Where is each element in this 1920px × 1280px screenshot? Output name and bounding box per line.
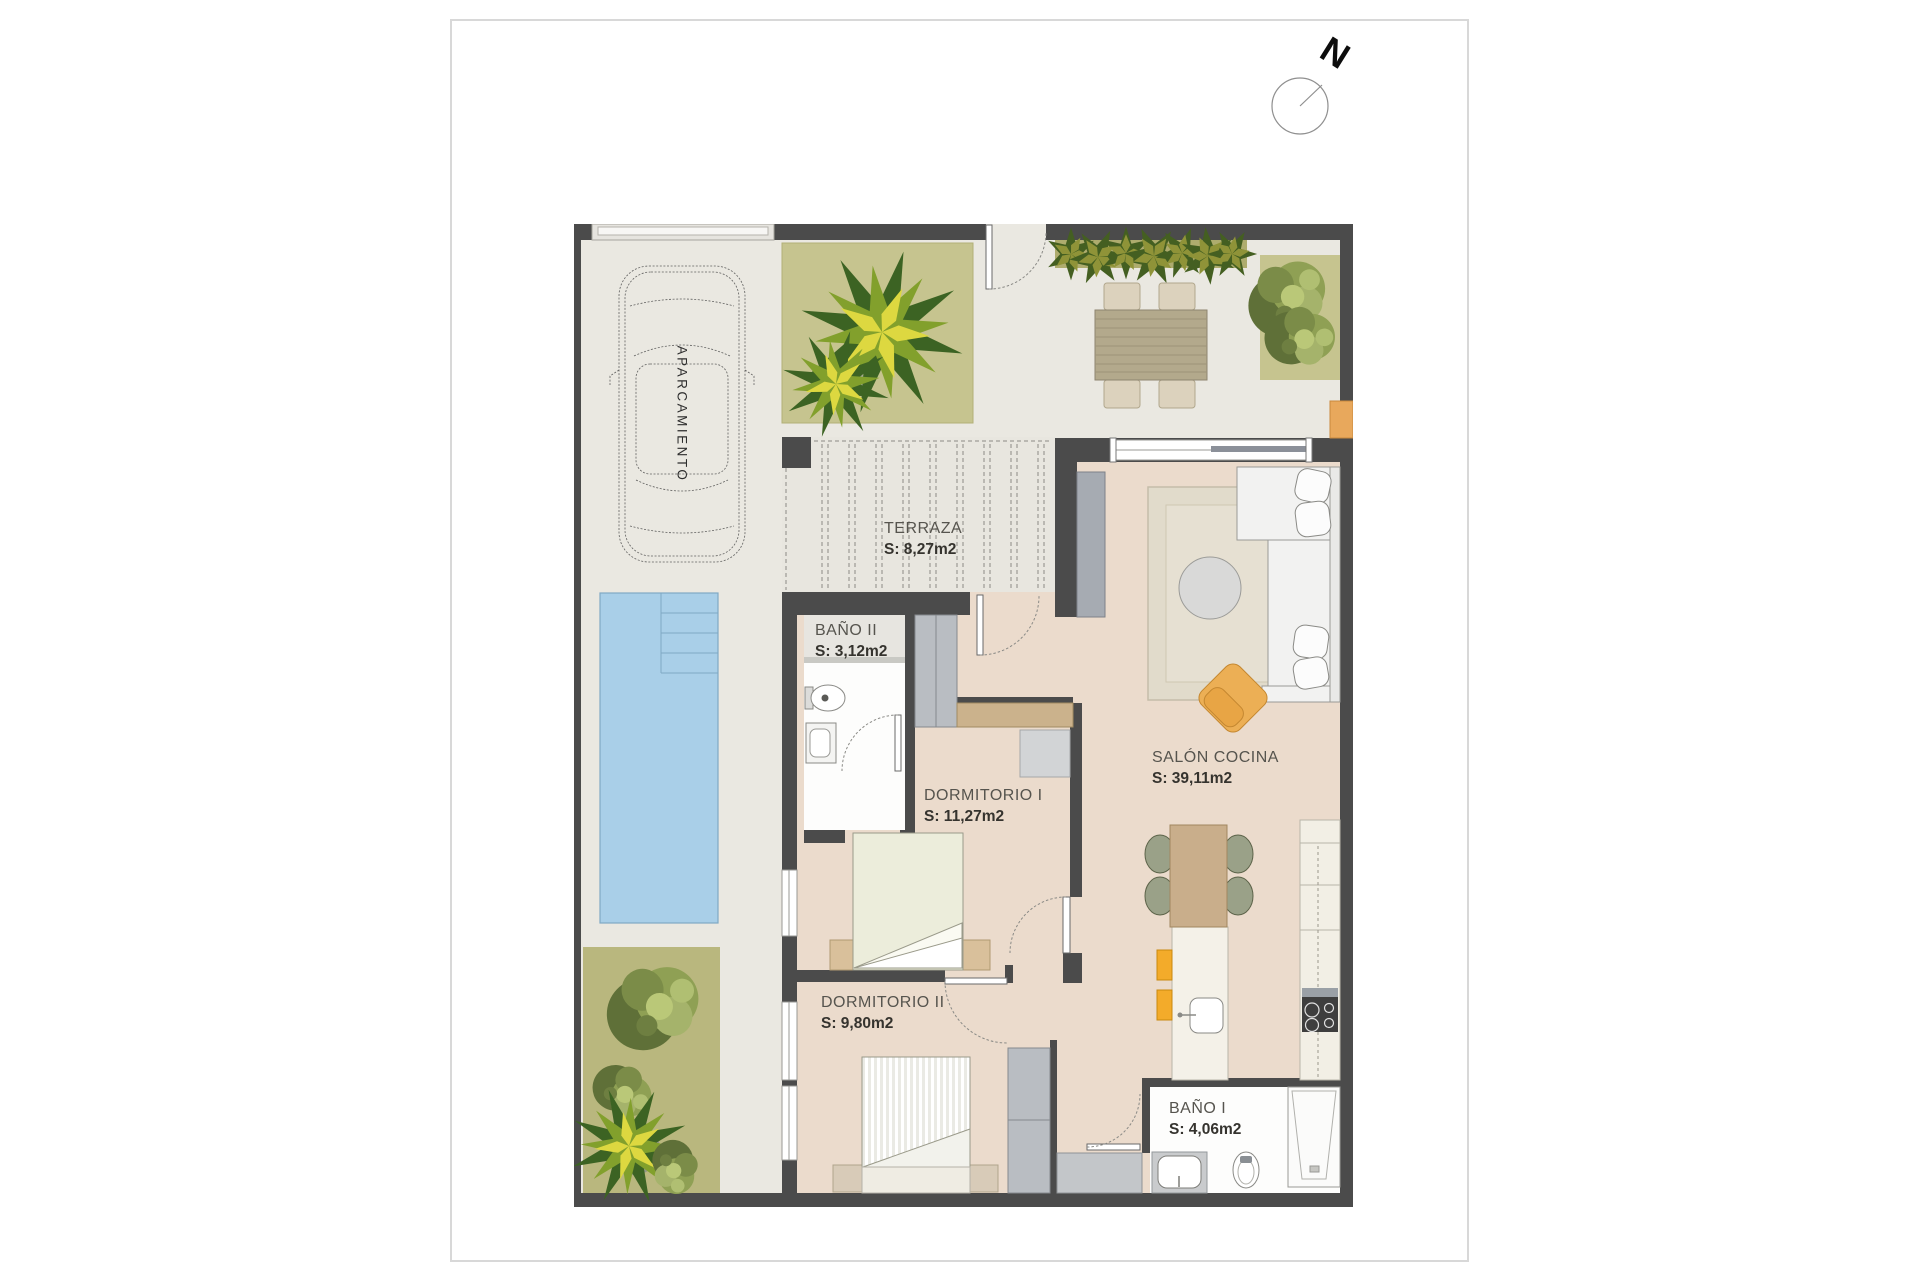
room-name: BAÑO I: [1169, 1098, 1241, 1119]
stool-yellow: [1157, 990, 1172, 1020]
room-label-bano2: BAÑO II S: 3,12m2: [815, 620, 887, 662]
floor-plan-graphic: [574, 224, 1353, 1207]
compass-needle: [1300, 85, 1322, 106]
coffee-table: [1179, 557, 1241, 619]
room-label-aparcamiento: APARCAMIENTO: [675, 346, 690, 483]
room-label-bano1: BAÑO I S: 4,06m2: [1169, 1098, 1241, 1140]
room-name: TERRAZA: [884, 518, 962, 539]
laundry-counter: [1057, 1153, 1142, 1193]
kitchen-island: [1172, 927, 1228, 1080]
room-name: SALÓN COCINA: [1152, 747, 1279, 768]
wardrobe-dormitorio2: [1008, 1048, 1050, 1193]
dormitorio2-door: [945, 978, 1007, 984]
plan-sheet: N: [0, 0, 1920, 1280]
room-label-dormitorio1: DORMITORIO I S: 11,27m2: [924, 785, 1043, 827]
room-label-salon-cocina: SALÓN COCINA S: 39,11m2: [1152, 747, 1279, 789]
cooktop: [1302, 988, 1338, 1032]
salon-sliding-door: [1110, 438, 1312, 462]
room-label-dormitorio2: DORMITORIO II S: 9,80m2: [821, 992, 945, 1034]
room-area: S: 11,27m2: [924, 806, 1043, 827]
terrace-deck: [782, 437, 1055, 592]
dormitorio1-door: [1063, 897, 1070, 953]
room-area: S: 3,12m2: [815, 641, 887, 662]
room-name: BAÑO II: [815, 620, 887, 641]
room-name: DORMITORIO II: [821, 992, 945, 1013]
bathroom1-door: [1087, 1144, 1140, 1150]
room-label-terraza: TERRAZA S: 8,27m2: [884, 518, 962, 560]
terrace-door: [977, 595, 983, 655]
room-area: S: 8,27m2: [884, 539, 962, 560]
garage-door: [592, 224, 774, 240]
planter-orange: [1330, 401, 1353, 438]
bathroom2-door: [895, 715, 901, 771]
bedroom-windows: [782, 870, 797, 1160]
room-area: S: 4,06m2: [1169, 1119, 1241, 1140]
pool: [600, 593, 718, 923]
entrance-door: [986, 225, 992, 289]
room-area: S: 39,11m2: [1152, 768, 1279, 789]
compass: N: [1266, 30, 1396, 140]
stool-yellow: [1157, 950, 1172, 980]
floor-plan: APARCAMIENTO TERRAZA S: 8,27m2 BAÑO II S…: [574, 224, 1353, 1207]
room-area: S: 9,80m2: [821, 1013, 945, 1034]
tv-cabinet: [1077, 472, 1105, 617]
room-name: DORMITORIO I: [924, 785, 1043, 806]
kitchen-counter: [1300, 820, 1340, 1080]
